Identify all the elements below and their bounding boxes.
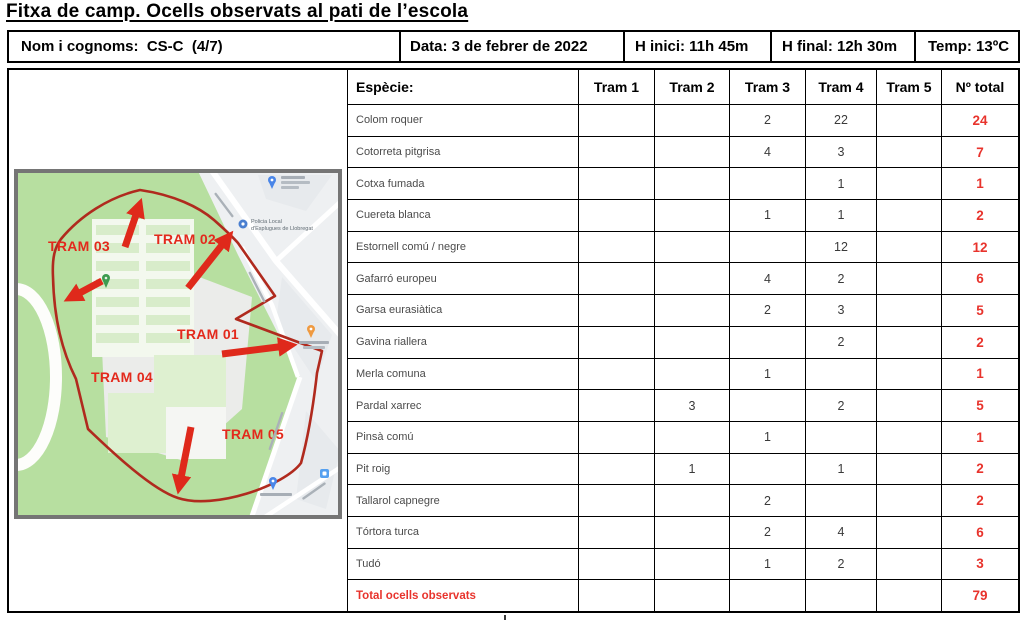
tram-count-cell <box>876 263 941 294</box>
cropped-text-artifact <box>504 615 506 620</box>
row-total-cell: 6 <box>941 263 1018 294</box>
row-total-cell: 5 <box>941 295 1018 326</box>
table-row: Garsa eurasiàtica 2 3 5 <box>348 294 1018 326</box>
tram-count-cell: 12 <box>805 232 876 263</box>
start-time-field: H inici: 11h 45m <box>623 32 770 61</box>
tram-count-cell <box>578 200 654 231</box>
tram-count-cell <box>578 232 654 263</box>
tram-count-cell: 1 <box>729 359 805 390</box>
tram-count-cell: 2 <box>729 295 805 326</box>
tram-count-cell <box>578 263 654 294</box>
tram-count-cell: 2 <box>805 390 876 421</box>
tram-count-cell: 2 <box>805 327 876 358</box>
tram-count-cell <box>876 422 941 453</box>
row-total-cell: 7 <box>941 137 1018 168</box>
tram-count-cell: 1 <box>729 200 805 231</box>
tram-count-cell <box>578 549 654 580</box>
tram-count-cell <box>654 549 729 580</box>
tram-count-cell: 2 <box>729 105 805 136</box>
observation-sheet: TRAM 03 TRAM 02 TRAM 01 TRAM 04 TRAM 05 <box>7 68 1020 613</box>
species-cell: Pardal xarrec <box>348 390 578 421</box>
row-total-cell: 6 <box>941 517 1018 548</box>
col-header-tram2: Tram 2 <box>654 70 729 104</box>
species-cell: Gavina riallera <box>348 327 578 358</box>
tram-count-cell: 1 <box>729 549 805 580</box>
table-row: Estornell comú / negre 12 12 <box>348 231 1018 263</box>
tram-count-cell <box>876 485 941 516</box>
tram-count-cell <box>654 327 729 358</box>
tram-count-cell <box>876 168 941 199</box>
tram-count-cell <box>654 295 729 326</box>
tram-label-03: TRAM 03 <box>48 238 110 254</box>
tram-count-cell <box>805 485 876 516</box>
map-cell: TRAM 03 TRAM 02 TRAM 01 TRAM 04 TRAM 05 <box>9 70 348 611</box>
tram-count-cell: 2 <box>729 485 805 516</box>
police-poi-label-2: d'Esplugues de Llobregat <box>251 226 313 232</box>
tram-count-cell: 1 <box>654 454 729 485</box>
tram-count-cell <box>578 454 654 485</box>
row-total-cell: 1 <box>941 168 1018 199</box>
tram-count-cell <box>729 168 805 199</box>
tram-count-cell <box>876 200 941 231</box>
species-cell: Merla comuna <box>348 359 578 390</box>
row-total-cell: 2 <box>941 454 1018 485</box>
tram-count-cell: 4 <box>729 137 805 168</box>
tram-count-cell <box>654 517 729 548</box>
species-cell: Cotxa fumada <box>348 168 578 199</box>
table-row: Tórtora turca 2 4 6 <box>348 516 1018 548</box>
row-total-cell: 24 <box>941 105 1018 136</box>
tram-count-cell <box>876 454 941 485</box>
species-cell: Pinsà comú <box>348 422 578 453</box>
tram-count-cell: 2 <box>729 517 805 548</box>
tram-count-cell <box>876 232 941 263</box>
tram-label-01: TRAM 01 <box>177 326 239 342</box>
tram-count-cell <box>876 295 941 326</box>
col-header-species: Espècie: <box>348 70 578 104</box>
table-row: Merla comuna 1 1 <box>348 358 1018 390</box>
tram-count-cell <box>654 232 729 263</box>
route-map: TRAM 03 TRAM 02 TRAM 01 TRAM 04 TRAM 05 <box>14 169 342 519</box>
table-row: Tudó 1 2 3 <box>348 548 1018 580</box>
tram-count-cell: 1 <box>805 200 876 231</box>
col-header-tram1: Tram 1 <box>578 70 654 104</box>
col-header-tram5: Tram 5 <box>876 70 941 104</box>
tram-count-cell <box>729 454 805 485</box>
table-row: Pardal xarrec 3 2 5 <box>348 389 1018 421</box>
species-cell: Garsa eurasiàtica <box>348 295 578 326</box>
row-total-cell: 2 <box>941 200 1018 231</box>
tram-count-cell: 4 <box>729 263 805 294</box>
row-total-cell: 12 <box>941 232 1018 263</box>
tram-count-cell <box>578 295 654 326</box>
species-cell: Pit roig <box>348 454 578 485</box>
tram-count-cell <box>654 263 729 294</box>
tram-count-cell <box>654 168 729 199</box>
tram-count-cell <box>654 137 729 168</box>
tram-count-cell <box>876 327 941 358</box>
species-cell: Gafarró europeu <box>348 263 578 294</box>
page-title: Fitxa de camp. Ocells observats al pati … <box>6 1 468 23</box>
species-cell: Tallarol capnegre <box>348 485 578 516</box>
info-bar: Nom i cognoms: CS-C (4/7) Data: 3 de feb… <box>7 30 1020 63</box>
grand-total-label: Total ocells observats <box>348 580 578 611</box>
row-total-cell: 1 <box>941 422 1018 453</box>
tram-count-cell <box>805 359 876 390</box>
tram-count-cell <box>876 390 941 421</box>
row-total-cell: 1 <box>941 359 1018 390</box>
row-total-cell: 2 <box>941 327 1018 358</box>
table-row: Pinsà comú 1 1 <box>348 421 1018 453</box>
tram-count-cell <box>578 580 654 611</box>
tram-label-02: TRAM 02 <box>154 231 216 247</box>
tram-count-cell <box>805 580 876 611</box>
tram-count-cell: 2 <box>805 263 876 294</box>
tram-count-cell: 1 <box>805 454 876 485</box>
tram-count-cell <box>654 485 729 516</box>
tram-count-cell <box>729 232 805 263</box>
tram-count-cell <box>876 549 941 580</box>
grand-total-value: 79 <box>941 580 1018 611</box>
tram-count-cell: 4 <box>805 517 876 548</box>
tram-count-cell <box>578 517 654 548</box>
tram-count-cell <box>876 105 941 136</box>
tram-count-cell <box>729 390 805 421</box>
grand-total-row: Total ocells observats 79 <box>348 579 1018 611</box>
tram-count-cell <box>578 327 654 358</box>
tram-count-cell <box>729 327 805 358</box>
species-cell: Tórtora turca <box>348 517 578 548</box>
col-header-tram4: Tram 4 <box>805 70 876 104</box>
name-field: Nom i cognoms: CS-C (4/7) <box>9 32 399 61</box>
tram-count-cell: 3 <box>654 390 729 421</box>
species-cell: Colom roquer <box>348 105 578 136</box>
police-poi-label-1: Policia Local <box>251 219 282 225</box>
row-total-cell: 2 <box>941 485 1018 516</box>
tram-count-cell <box>578 422 654 453</box>
tram-count-cell: 3 <box>805 295 876 326</box>
table-row: Gavina riallera 2 2 <box>348 326 1018 358</box>
table-row: Cotorreta pitgrisa 4 3 7 <box>348 136 1018 168</box>
tram-label-04: TRAM 04 <box>91 369 153 385</box>
tram-count-cell: 1 <box>805 168 876 199</box>
tram-count-cell <box>578 485 654 516</box>
tram-count-cell <box>654 105 729 136</box>
tram-count-cell <box>578 168 654 199</box>
row-total-cell: 5 <box>941 390 1018 421</box>
tram-count-cell: 22 <box>805 105 876 136</box>
tram-count-cell: 3 <box>805 137 876 168</box>
tram-count-cell <box>654 580 729 611</box>
tram-count-cell <box>578 137 654 168</box>
table-row: Gafarró europeu 4 2 6 <box>348 262 1018 294</box>
tram-count-cell <box>654 200 729 231</box>
row-total-cell: 3 <box>941 549 1018 580</box>
tram-count-cell <box>876 137 941 168</box>
temperature-field: Temp: 13ºC <box>914 32 1018 61</box>
tram-count-cell <box>654 359 729 390</box>
tram-count-cell: 2 <box>805 549 876 580</box>
tram-count-cell: 1 <box>729 422 805 453</box>
tram-count-cell <box>729 580 805 611</box>
table-header-row: Espècie: Tram 1 Tram 2 Tram 3 Tram 4 Tra… <box>348 70 1018 104</box>
tram-count-cell <box>578 105 654 136</box>
table-row: Cotxa fumada 1 1 <box>348 167 1018 199</box>
species-cell: Cuereta blanca <box>348 200 578 231</box>
species-cell: Estornell comú / negre <box>348 232 578 263</box>
col-header-tram3: Tram 3 <box>729 70 805 104</box>
species-table: Espècie: Tram 1 Tram 2 Tram 3 Tram 4 Tra… <box>348 70 1018 611</box>
tram-count-cell <box>654 422 729 453</box>
tram-count-cell <box>876 580 941 611</box>
table-row: Cuereta blanca 1 1 2 <box>348 199 1018 231</box>
tram-count-cell <box>578 390 654 421</box>
end-time-field: H final: 12h 30m <box>770 32 914 61</box>
table-row: Pit roig 1 1 2 <box>348 453 1018 485</box>
tram-count-cell <box>876 517 941 548</box>
table-row: Tallarol capnegre 2 2 <box>348 484 1018 516</box>
col-header-total: Nº total <box>941 70 1018 104</box>
tram-count-cell <box>805 422 876 453</box>
transit-station-icon <box>320 469 329 478</box>
tram-count-cell <box>876 359 941 390</box>
date-field: Data: 3 de febrer de 2022 <box>399 32 623 61</box>
species-cell: Cotorreta pitgrisa <box>348 137 578 168</box>
tram-count-cell <box>578 359 654 390</box>
species-cell: Tudó <box>348 549 578 580</box>
table-row: Colom roquer 2 22 24 <box>348 104 1018 136</box>
